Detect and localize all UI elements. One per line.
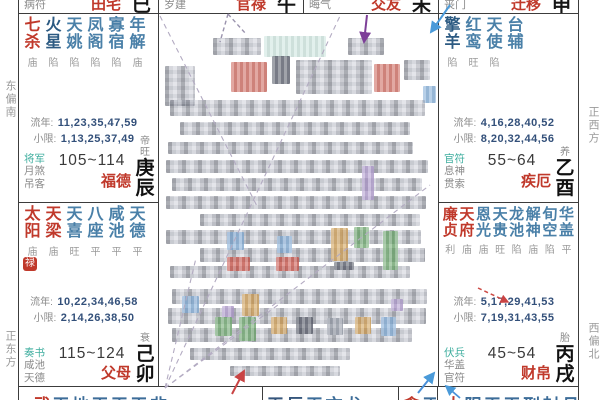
star-xunkong: 旬空 xyxy=(542,207,558,239)
earthly-branch: 午 xyxy=(277,0,296,13)
palace-god: 岁建 xyxy=(164,0,186,12)
stem-branch-column: 胎 丙戌 xyxy=(554,333,576,385)
star-row: 廉贞利 天府庙 恩光庙 天贵旺 龙池陷 解神庙 旬空陷 华盖平 xyxy=(442,207,575,256)
direction-label-east: 正东方 xyxy=(2,330,18,369)
star-enguang: 恩光 xyxy=(475,207,491,239)
star-tianyao: 天姚 xyxy=(66,18,83,52)
censored-birth-info xyxy=(159,14,437,386)
star-tiande: 天德 xyxy=(129,207,146,241)
palace-bottom-row[interactable]: 太阴天天刑封月 xyxy=(438,387,577,400)
palace-name: 福德 xyxy=(101,170,131,191)
yearly-ages: 流年: 11,23,35,47,59 小限: 1,13,25,37,49 xyxy=(24,115,144,147)
star-huoxing: 火星 xyxy=(45,18,62,52)
star-taiyang: 太阳 xyxy=(24,207,41,241)
palace-jiaoyou-wei[interactable]: 晦气 交友 未 xyxy=(304,0,437,13)
star-tianfu: 天府 xyxy=(459,207,475,239)
palace-god: 晦气 xyxy=(309,0,331,12)
palace-fumu[interactable]: 太阳庙 天梁庙 天喜旺 八座平 咸池平 天德平 禄 流年: 10,22,34,4… xyxy=(18,202,158,386)
yearly-ages: 流年: 10,22,34,46,58 小限: 2,14,26,38,50 xyxy=(24,294,144,326)
star-tianxi: 天喜 xyxy=(66,207,83,241)
star-row: 七杀庙 火星陷 天姚陷 凤阁陷 寡宿陷 年解庙 xyxy=(22,18,148,69)
decade-range: 105~114 xyxy=(50,152,134,170)
earthly-branch: 巳 xyxy=(132,0,151,13)
palace-gods: 奏书 咸池 天德 xyxy=(24,347,45,385)
star-qingyang: 擎羊 xyxy=(444,18,461,52)
ziwei-chart: 东偏南 正东方 正西方 西偏北 病符 田宅 巳 岁建 官禄 午 晦气 交友 未 … xyxy=(0,0,600,400)
decade-range: 55~64 xyxy=(470,152,554,170)
star-xianchi: 咸池 xyxy=(108,207,125,241)
palace-gods: 官符 息神 贯索 xyxy=(444,153,465,191)
star-hongluan: 红鸾 xyxy=(465,18,482,52)
hua-lu-badge: 禄 xyxy=(23,257,37,271)
stem-branch-column: 衰 己卯 xyxy=(134,333,156,385)
yearly-ages: 流年: 4,16,28,40,52 小限: 8,20,32,44,56 xyxy=(444,115,564,147)
star-guasu: 寡宿 xyxy=(108,18,125,52)
decade-range: 115~124 xyxy=(50,345,134,363)
palace-bottom-row[interactable]: 贪天 xyxy=(399,387,436,400)
palace-name: 田宅 xyxy=(91,0,121,13)
palace-name: 疾厄 xyxy=(521,170,551,191)
star-row: 太阳庙 天梁庙 天喜旺 八座平 咸池平 天德平 xyxy=(22,207,148,258)
direction-label-west-north: 西偏北 xyxy=(585,322,600,361)
palace-name: 交友 xyxy=(371,0,401,13)
palace-guanlu-wu[interactable]: 岁建 官禄 午 xyxy=(159,0,302,13)
star-bazuo: 八座 xyxy=(87,207,104,241)
direction-label-east-south: 东偏南 xyxy=(2,80,18,119)
palace-god: 病符 xyxy=(24,0,46,12)
grid-line xyxy=(578,0,579,400)
earthly-branch: 未 xyxy=(412,0,431,13)
star-fengge: 凤阁 xyxy=(87,18,104,52)
palace-name: 财帛 xyxy=(521,362,551,383)
star-jieshen: 解神 xyxy=(525,207,541,239)
palace-caibo[interactable]: 廉贞利 天府庙 恩光庙 天贵旺 龙池陷 解神庙 旬空陷 华盖平 流年: 5,17… xyxy=(438,202,578,386)
decade-range: 45~54 xyxy=(470,345,554,363)
palace-qianyi-shen[interactable]: 丧门 迁移 申 xyxy=(439,0,577,13)
star-longchi: 龙池 xyxy=(509,207,525,239)
palace-name: 迁移 xyxy=(511,0,541,13)
star-row: 擎羊陷 红鸾旺 天使陷 台辅 xyxy=(442,18,526,69)
palace-bottom-row[interactable]: 武天地天天天非 xyxy=(19,387,261,400)
star-tiangui: 天贵 xyxy=(492,207,508,239)
palace-name: 官禄 xyxy=(236,0,266,13)
palace-tianzhai-si[interactable]: 病符 田宅 巳 xyxy=(19,0,157,13)
palace-bottom-row[interactable]: 天巨天文龙 xyxy=(263,387,397,400)
palace-jie[interactable]: 擎羊陷 红鸾旺 天使陷 台辅 流年: 4,16,28,40,52 小限: 8,2… xyxy=(438,13,578,202)
yearly-ages: 流年: 5,17,29,41,53 小限: 7,19,31,43,55 xyxy=(444,294,564,326)
palace-gods: 伏兵 华盖 官符 xyxy=(444,347,465,385)
stem-branch-column: 养 乙酉 xyxy=(554,147,576,199)
star-taifu: 台辅 xyxy=(507,18,524,52)
stem-branch-column: 帝旺 庚辰 xyxy=(134,136,156,199)
star-tianliang: 天梁 xyxy=(45,207,62,241)
palace-god: 丧门 xyxy=(444,0,466,12)
star-qisha: 七杀 xyxy=(24,18,41,52)
star-nianjie: 年解 xyxy=(129,18,146,52)
palace-fude[interactable]: 七杀庙 火星陷 天姚陷 凤阁陷 寡宿陷 年解庙 流年: 11,23,35,47,… xyxy=(18,13,158,202)
direction-label-west: 正西方 xyxy=(585,106,600,145)
star-lianzhen: 廉贞 xyxy=(442,207,458,239)
palace-gods: 将军 月煞 吊客 xyxy=(24,153,45,191)
star-huagai: 华盖 xyxy=(558,207,574,239)
palace-name: 父母 xyxy=(101,362,131,383)
earthly-branch: 申 xyxy=(552,0,571,13)
star-tianshi: 天使 xyxy=(486,18,503,52)
